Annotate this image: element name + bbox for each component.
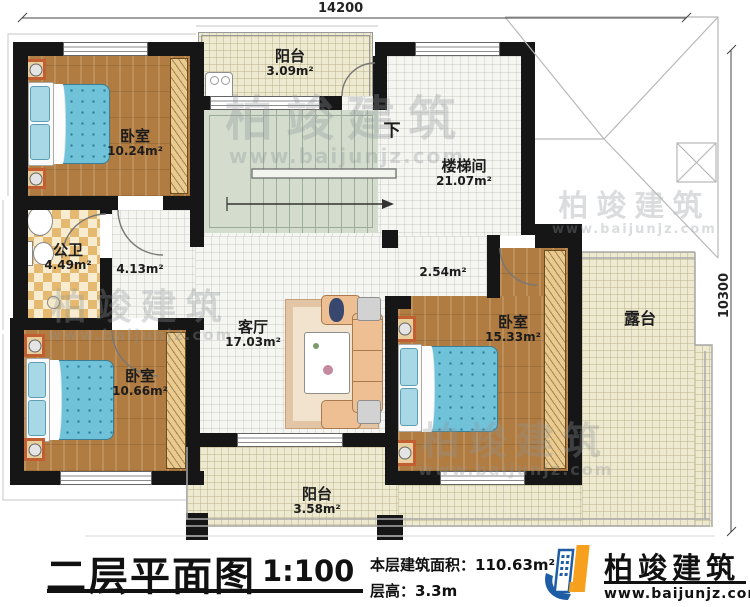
stairs-down-text: 下 <box>381 122 403 142</box>
wall <box>190 42 204 247</box>
bed-pillow <box>400 388 418 426</box>
room-name: 露台 <box>608 310 672 328</box>
wall <box>100 196 112 214</box>
room-area: 3.58m² <box>282 503 352 517</box>
room-name: 卧室 <box>470 314 556 331</box>
dimension-top: 14200 <box>318 1 363 16</box>
room-label-bedroom-top-left: 卧室 10.24m² <box>95 128 175 159</box>
lamp-icon <box>28 443 41 456</box>
corridor-area-label: 2.54m² <box>413 266 473 280</box>
side-table <box>357 400 381 424</box>
terrace-bottom-floor <box>398 485 582 527</box>
sliding-door <box>237 433 343 447</box>
roof-lines <box>505 17 718 258</box>
room-label-stairwell: 楼梯间 21.07m² <box>418 158 510 189</box>
shower-head-icon <box>47 296 60 309</box>
floor-plan-page: 柏竣建筑 www.baijunjz.com 柏竣建筑 www.baijunjz.… <box>0 0 750 607</box>
wall <box>10 318 24 485</box>
room-area: 10.66m² <box>98 385 182 399</box>
wall <box>521 42 535 235</box>
plan-scale: 1:100 <box>262 554 354 588</box>
terrace-right-floor <box>582 252 695 527</box>
window <box>415 42 500 56</box>
room-area: 3.09m² <box>255 65 325 79</box>
wardrobe-bottom-left <box>166 332 186 469</box>
bed-sheet-fold <box>50 360 62 440</box>
wardrobe-right <box>544 250 566 469</box>
wall <box>320 96 342 110</box>
table-decor-icon <box>323 365 333 375</box>
title-underline <box>47 589 363 593</box>
room-area: 4.49m² <box>36 259 100 273</box>
stairs <box>204 110 378 233</box>
floor-area-label: 本层建筑面积： <box>370 556 475 574</box>
corridor-area-value: 2.54m² <box>413 266 473 280</box>
room-area: 21.07m² <box>418 175 510 189</box>
room-name: 楼梯间 <box>418 158 510 175</box>
floor-height-line: 层高：3.3m <box>370 580 457 601</box>
wall <box>487 235 500 298</box>
nightstand <box>24 334 45 357</box>
room-area: 15.33m² <box>470 331 556 345</box>
terrace-right-ext-floor <box>695 345 712 527</box>
table-decor-icon <box>313 343 319 349</box>
coffee-table <box>304 332 350 394</box>
washing-machine-icon <box>205 72 233 99</box>
nightstand <box>25 59 46 80</box>
floor-area-line: 本层建筑面积：110.63m² <box>370 554 555 575</box>
wall <box>13 42 28 330</box>
wardrobe-top-left <box>170 58 188 194</box>
nightstand <box>24 438 45 461</box>
wall <box>375 42 415 56</box>
room-label-balcony-bottom: 阳台 3.58m² <box>282 486 352 517</box>
room-area: 10.24m² <box>95 145 175 159</box>
room-name: 卧室 <box>95 128 175 145</box>
window <box>440 471 525 485</box>
wall <box>568 225 582 485</box>
wall <box>373 56 387 110</box>
lamp-icon <box>29 172 42 185</box>
interior-window <box>210 96 320 110</box>
bed-pillow <box>28 362 46 398</box>
room-name: 公卫 <box>36 242 100 259</box>
bed-pillow <box>30 86 50 122</box>
logo-buildings <box>555 545 590 592</box>
room-label-living-room: 客厅 17.03m² <box>218 319 288 350</box>
brand-url: www.baijunjz.com <box>604 586 750 602</box>
person-figure <box>329 298 344 322</box>
room-label-terrace: 露台 <box>608 310 672 328</box>
wall <box>186 318 200 485</box>
nightstand <box>25 168 46 189</box>
stairs-treads <box>250 110 378 233</box>
floor-height-value: 3.3m <box>415 582 457 600</box>
room-label-bedroom-right: 卧室 15.33m² <box>470 314 556 345</box>
bed-pillow <box>400 348 418 386</box>
watermark-text: 柏竣建筑 <box>552 192 717 222</box>
washer-dial-icon <box>221 76 230 85</box>
sink-icon <box>27 206 53 236</box>
lamp-icon <box>28 339 41 352</box>
room-name: 阳台 <box>255 48 325 65</box>
bed-sheet-fold <box>54 84 66 164</box>
room-name: 卧室 <box>98 368 182 385</box>
plan-title: 二层平面图 <box>46 544 256 602</box>
stairs-down-label: 下 <box>381 122 403 142</box>
room-area: 17.03m² <box>218 336 288 350</box>
wall <box>195 433 237 447</box>
wall <box>385 296 398 485</box>
room-name: 阳台 <box>282 486 352 503</box>
floor-height-label: 层高： <box>370 582 415 600</box>
brand-divider <box>604 581 746 584</box>
room-name: 客厅 <box>218 319 288 336</box>
window <box>60 471 152 485</box>
lamp-icon <box>399 447 412 460</box>
brand-logo-icon <box>538 542 600 604</box>
room-label-bathroom: 公卫 4.49m² <box>36 242 100 273</box>
title-block: 二层平面图 1:100 本层建筑面积：110.63m² 层高：3.3m 柏竣建筑… <box>0 540 750 607</box>
side-table <box>357 297 381 321</box>
bed-pillow <box>28 400 46 436</box>
corridor-area-label: 4.13m² <box>110 263 170 277</box>
bed-pillow <box>30 124 50 160</box>
lamp-icon <box>29 63 42 76</box>
room-label-bedroom-bottom-left: 卧室 10.66m² <box>98 368 182 399</box>
window <box>63 42 148 56</box>
pillar <box>186 513 208 541</box>
corridor-area-value: 4.13m² <box>110 263 170 277</box>
sofa-right <box>352 313 383 413</box>
room-label-balcony-top: 阳台 3.09m² <box>255 48 325 79</box>
pillar <box>382 230 398 248</box>
washer-dial-icon <box>210 76 219 85</box>
dimension-right: 10300 <box>717 273 732 318</box>
lamp-icon <box>399 323 412 336</box>
bed-sheet-fold <box>422 346 435 432</box>
